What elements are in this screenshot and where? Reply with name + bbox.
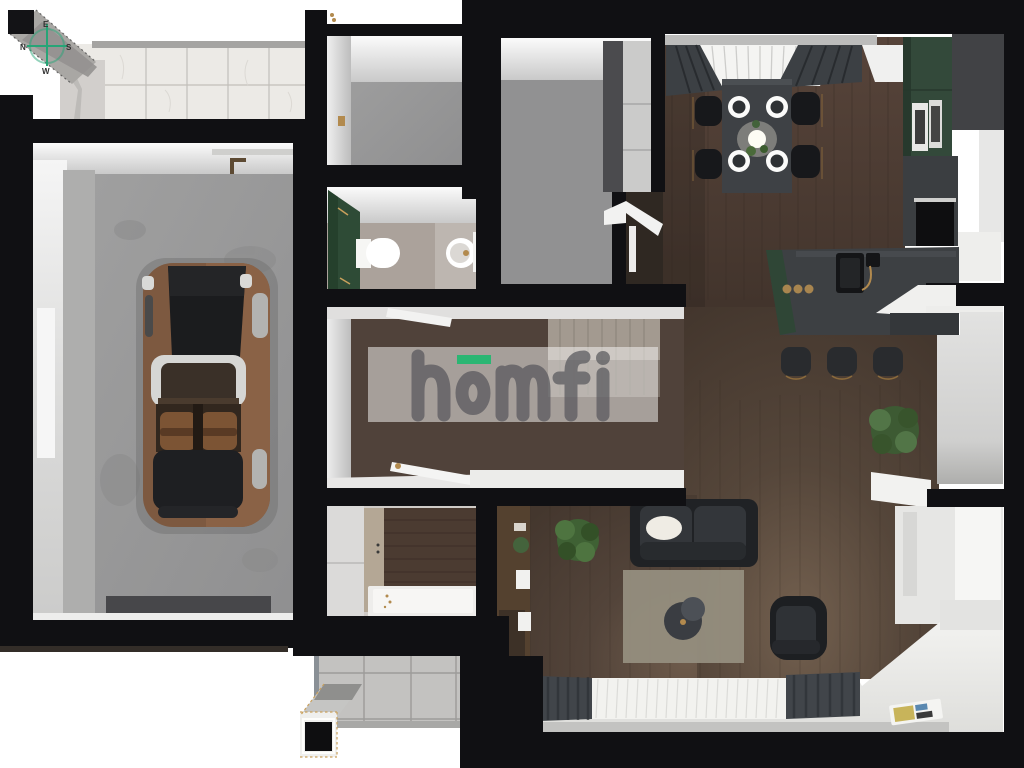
svg-text:W: W — [42, 67, 50, 76]
svg-text:N: N — [20, 43, 26, 52]
svg-text:E: E — [43, 20, 49, 29]
svg-text:S: S — [66, 43, 72, 52]
